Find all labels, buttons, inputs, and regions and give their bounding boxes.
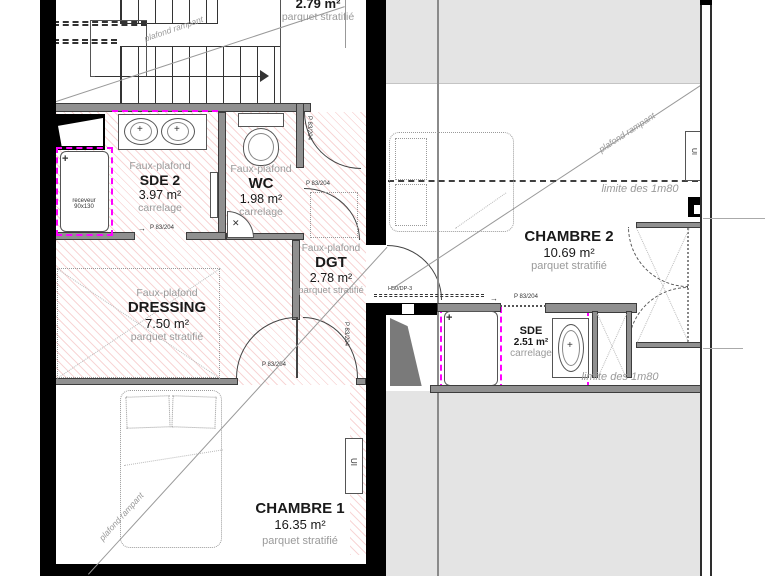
tap-cross-icon: + bbox=[174, 124, 180, 135]
window-label: H50/DP-3 bbox=[388, 286, 412, 292]
stairs-guardrail-lower bbox=[53, 39, 117, 44]
wall-sde-closet-right bbox=[626, 311, 632, 378]
wall-sde-closet-left bbox=[592, 311, 598, 378]
room-label-dressing: Faux-plafond DRESSING 7.50 m² parquet st… bbox=[128, 287, 206, 343]
wall-sde-top-right bbox=[545, 303, 637, 313]
room-label-wc: Faux-plafond WC 1.98 m² carrelage bbox=[230, 163, 291, 218]
room-label-dgt: Faux-plafond DGT 2.78 m² parquet stratif… bbox=[298, 243, 363, 296]
pocket-door-sde2 bbox=[210, 172, 218, 218]
zone-edge-line bbox=[386, 83, 700, 84]
door-leaf-dressing bbox=[296, 317, 298, 378]
wall-right-exterior bbox=[700, 0, 712, 576]
stairwell-outline bbox=[90, 20, 147, 77]
room-label-sde2: Faux-plafond SDE 2 3.97 m² carrelage bbox=[129, 160, 190, 214]
wall-wc-right bbox=[296, 103, 304, 168]
wall-central-upper bbox=[366, 0, 386, 245]
wall-right-cap bbox=[700, 0, 712, 5]
wall-left-exterior bbox=[40, 0, 56, 576]
door-arrow-sde: → bbox=[490, 294, 498, 303]
low-ceiling-zone-bottom bbox=[386, 391, 700, 576]
wall-sde-bottom bbox=[430, 385, 702, 393]
low-ceiling-zone-top bbox=[386, 0, 700, 84]
tap-cross-icon: + bbox=[567, 340, 573, 351]
shower-size-label: receveur90x130 bbox=[72, 198, 95, 210]
wall-chambre1-top bbox=[53, 378, 238, 385]
limite-1m80-label: limite des 1m80 bbox=[601, 183, 678, 195]
room-label-sde: SDE 2.51 m² carrelage bbox=[510, 325, 552, 359]
stairs-guardrail-upper bbox=[53, 21, 147, 26]
door-leaf-dashed-hall bbox=[310, 192, 358, 238]
structural-line bbox=[437, 0, 439, 576]
floor-plan: plafond rampant + receveur90x130 + + ✕ P… bbox=[0, 0, 768, 576]
closet-door-arc-lower bbox=[628, 287, 688, 347]
room-label-chambre1: CHAMBRE 1 16.35 m² parquet stratifié bbox=[255, 500, 344, 547]
closet-door-arc-upper bbox=[628, 227, 688, 287]
stairs-walkline bbox=[95, 76, 262, 77]
radiator-chambre1 bbox=[345, 438, 363, 494]
radiator-chambre2-label: UI bbox=[690, 148, 697, 155]
tap-cross-icon: + bbox=[137, 124, 143, 135]
dimension-tick bbox=[703, 218, 765, 219]
toilet-tank-icon bbox=[238, 113, 284, 127]
door-arrow-sde2: → bbox=[138, 224, 146, 233]
bed-pillow bbox=[171, 395, 216, 429]
wall-sde2-bottom-right bbox=[186, 232, 226, 240]
door-label-hall: P 83/204 bbox=[306, 181, 330, 187]
door-label-dressing: P 83/204 bbox=[262, 362, 286, 368]
stairs-direction-arrow-icon bbox=[260, 70, 269, 82]
wall-sde-duct-gap bbox=[402, 304, 414, 314]
door-label-sde: P 83/204 bbox=[514, 294, 538, 300]
wall-sde2-wc-divider bbox=[218, 112, 226, 240]
dimension-tick bbox=[703, 348, 743, 349]
radiator-chambre1-label: UI bbox=[349, 458, 358, 466]
limite-1m80-label-2: limite des 1m80 bbox=[581, 371, 658, 383]
sliding-door-track bbox=[500, 305, 546, 307]
door-label-wc: P 83/204 bbox=[306, 116, 312, 140]
door-label-dgt-south: P 83/204 bbox=[343, 322, 349, 346]
radiator-chambre2 bbox=[685, 131, 701, 181]
bed-pillow bbox=[125, 395, 170, 429]
room-label-palier: 2.79 m² parquet stratifié bbox=[282, 0, 354, 23]
duct-shading bbox=[390, 318, 434, 386]
toilet-bowl-inner bbox=[248, 133, 274, 161]
tiling-limit-vanity bbox=[112, 110, 218, 112]
wall-chambre1-top-right bbox=[356, 378, 366, 385]
basin-cross-icon: ✕ bbox=[232, 218, 240, 229]
window-dashed-line bbox=[374, 294, 484, 297]
bed-pillow bbox=[395, 138, 427, 180]
bed-pillow bbox=[395, 184, 427, 226]
wall-central-lower bbox=[366, 303, 386, 576]
drain-crosshair-icon: + bbox=[62, 153, 68, 165]
door-label-sde2: P 83/204 bbox=[150, 225, 174, 231]
room-label-chambre2: CHAMBRE 2 10.69 m² parquet stratifié bbox=[524, 228, 613, 272]
drain-crosshair-icon: + bbox=[446, 312, 452, 324]
roof-slope-label-chambre2: plafond rampant bbox=[597, 111, 657, 155]
